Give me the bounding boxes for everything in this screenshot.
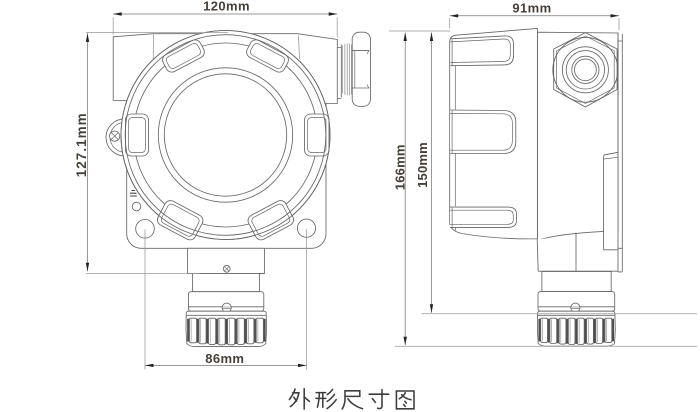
svg-text:91mm: 91mm — [512, 1, 551, 16]
svg-text:166mm: 166mm — [392, 144, 407, 190]
svg-text:86mm: 86mm — [205, 351, 244, 366]
svg-text:120mm: 120mm — [203, 0, 250, 14]
svg-text:150mm: 150mm — [415, 142, 430, 188]
svg-text:127.1mm: 127.1mm — [74, 112, 89, 177]
